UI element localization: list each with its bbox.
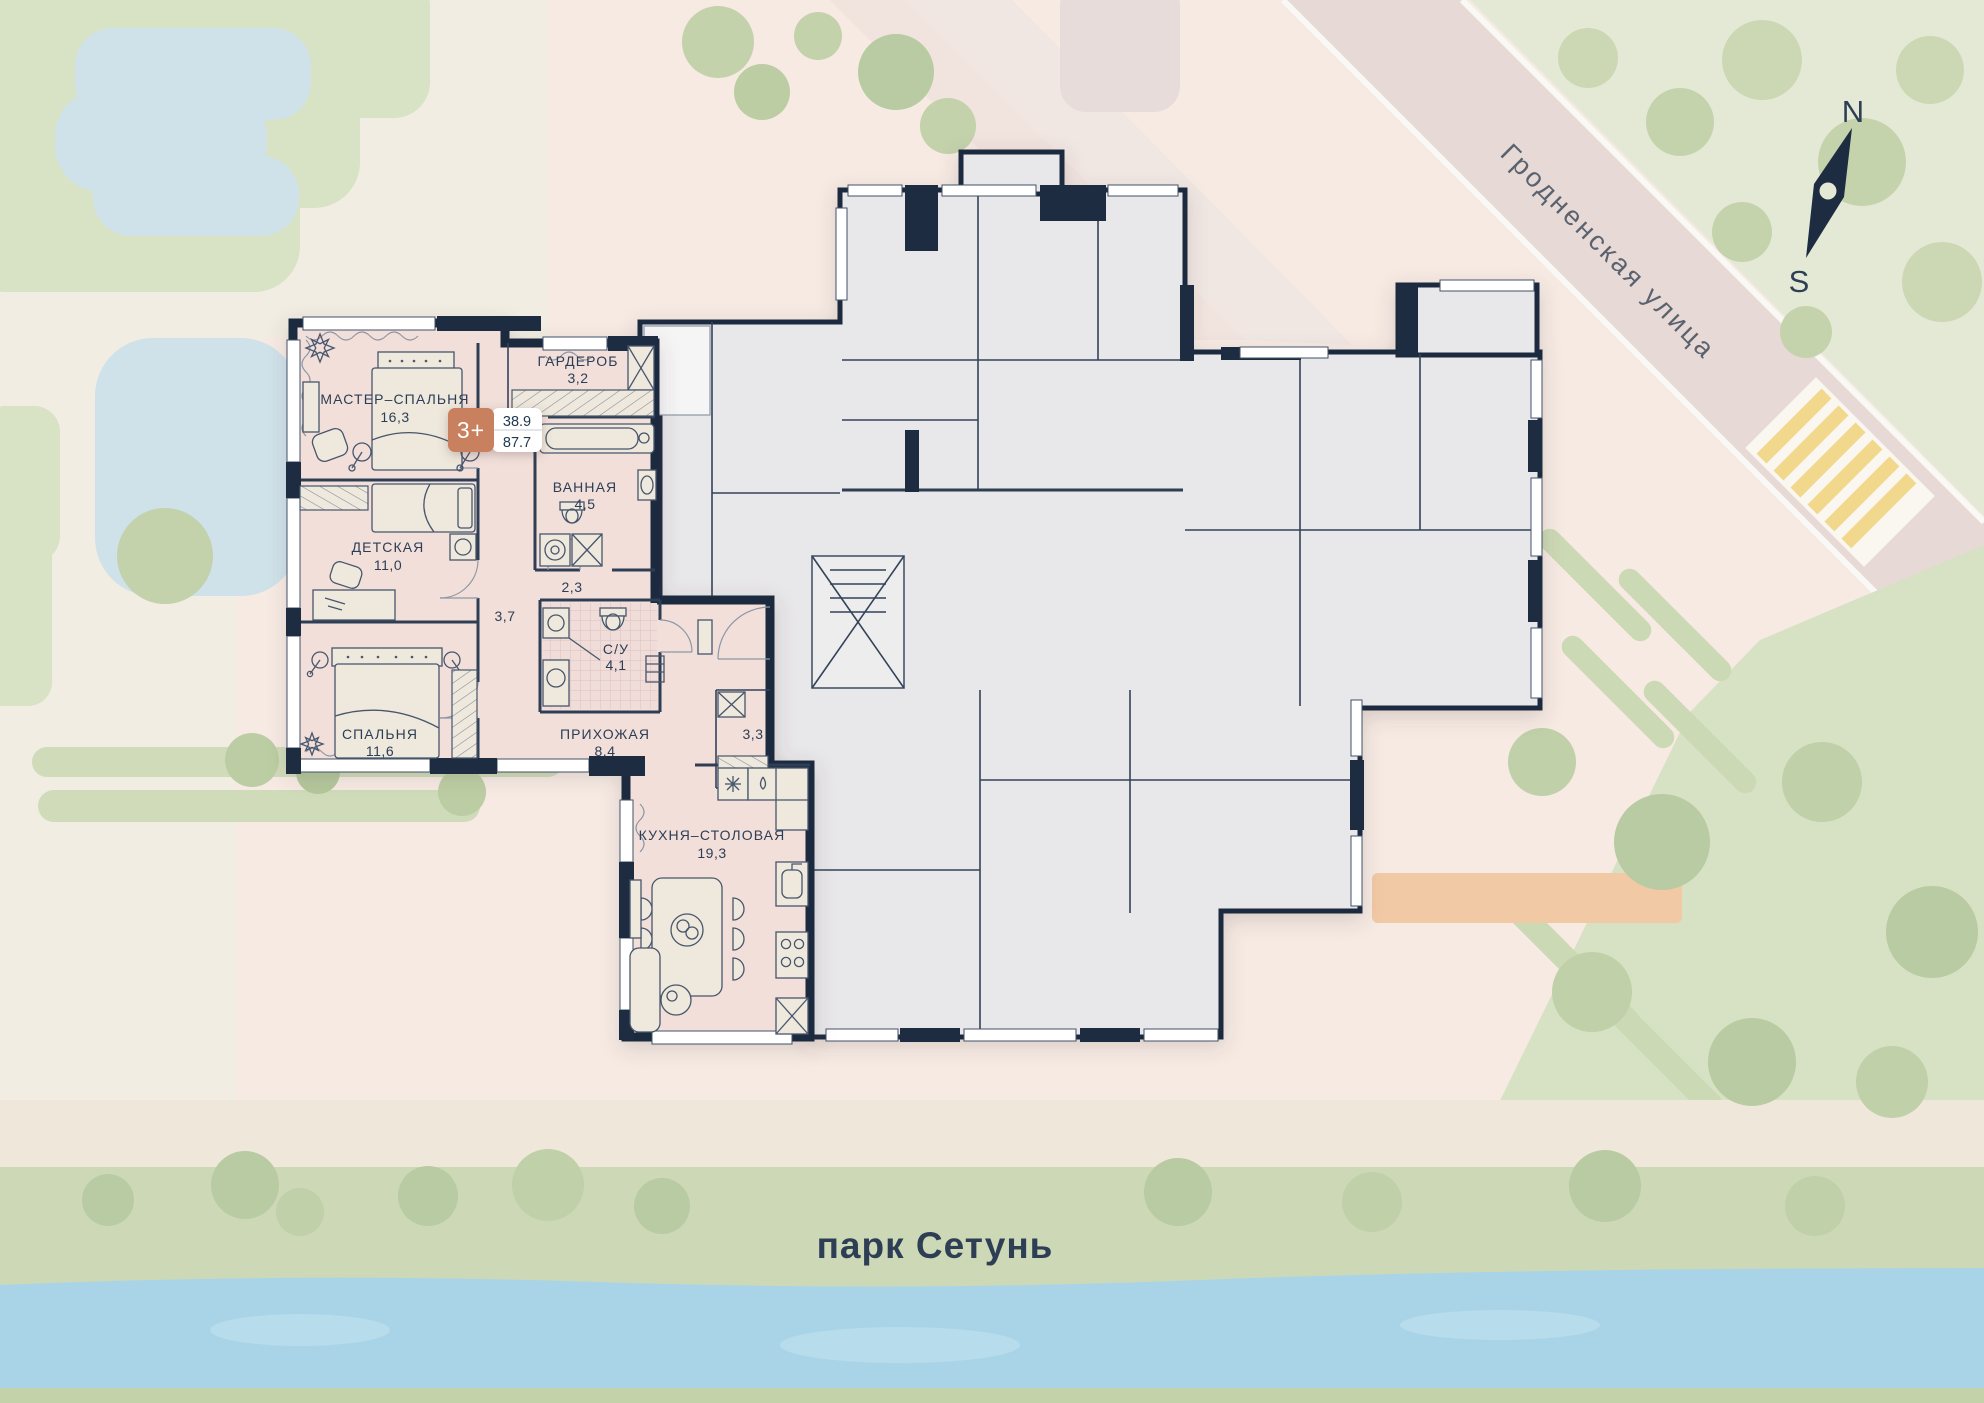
area-niche: 2,3 bbox=[562, 579, 583, 595]
tree bbox=[117, 508, 213, 604]
room-area-wardrobe: 3,2 bbox=[568, 370, 589, 386]
area-living-value: 38.9 bbox=[503, 414, 531, 430]
north-label: N bbox=[1842, 94, 1864, 129]
room-label-wardrobe: ГАРДЕРОБ bbox=[537, 353, 618, 369]
room-label-bedroom: СПАЛЬНЯ bbox=[342, 726, 418, 742]
area-corridor: 3,7 bbox=[495, 608, 516, 624]
green-edge-bottom bbox=[0, 1388, 1984, 1403]
room-label-bath: ВАННАЯ bbox=[553, 479, 617, 495]
room-area-bath: 4,5 bbox=[575, 496, 596, 512]
room-label-master: МАСТЕР–СПАЛЬНЯ bbox=[320, 391, 469, 407]
room-area-bedroom: 11,6 bbox=[366, 743, 394, 759]
tree bbox=[438, 768, 486, 816]
site-plan: Гродненская улица парк Сетунь bbox=[0, 0, 1984, 1403]
tree bbox=[225, 733, 279, 787]
room-label-wc: С/У bbox=[603, 641, 629, 657]
room-area-kitchen: 19,3 bbox=[697, 845, 726, 861]
room-area-kids: 11,0 bbox=[374, 557, 402, 573]
room-label-hall: ПРИХОЖАЯ bbox=[560, 726, 650, 742]
path-band bbox=[0, 1100, 1984, 1170]
unit-badge[interactable]: 3+ 38.9 87.7 bbox=[448, 408, 542, 452]
park-label: парк Сетунь bbox=[817, 1225, 1054, 1266]
badge-rooms-label: 3+ bbox=[457, 417, 485, 443]
site-plan-canvas: Гродненская улица парк Сетунь bbox=[0, 0, 1984, 1403]
room-label-kitchen: КУХНЯ–СТОЛОВАЯ bbox=[639, 827, 786, 843]
room-area-wc: 4,1 bbox=[606, 657, 627, 673]
south-label: S bbox=[1789, 264, 1810, 299]
area-storage: 3,3 bbox=[743, 726, 764, 742]
room-label-kids: ДЕТСКАЯ bbox=[352, 539, 425, 555]
wc-furniture bbox=[543, 603, 657, 709]
area-total-value: 87.7 bbox=[503, 435, 531, 451]
stair-core bbox=[812, 556, 904, 688]
room-area-hall: 8,4 bbox=[595, 743, 616, 759]
room-area-master: 16,3 bbox=[380, 409, 409, 425]
